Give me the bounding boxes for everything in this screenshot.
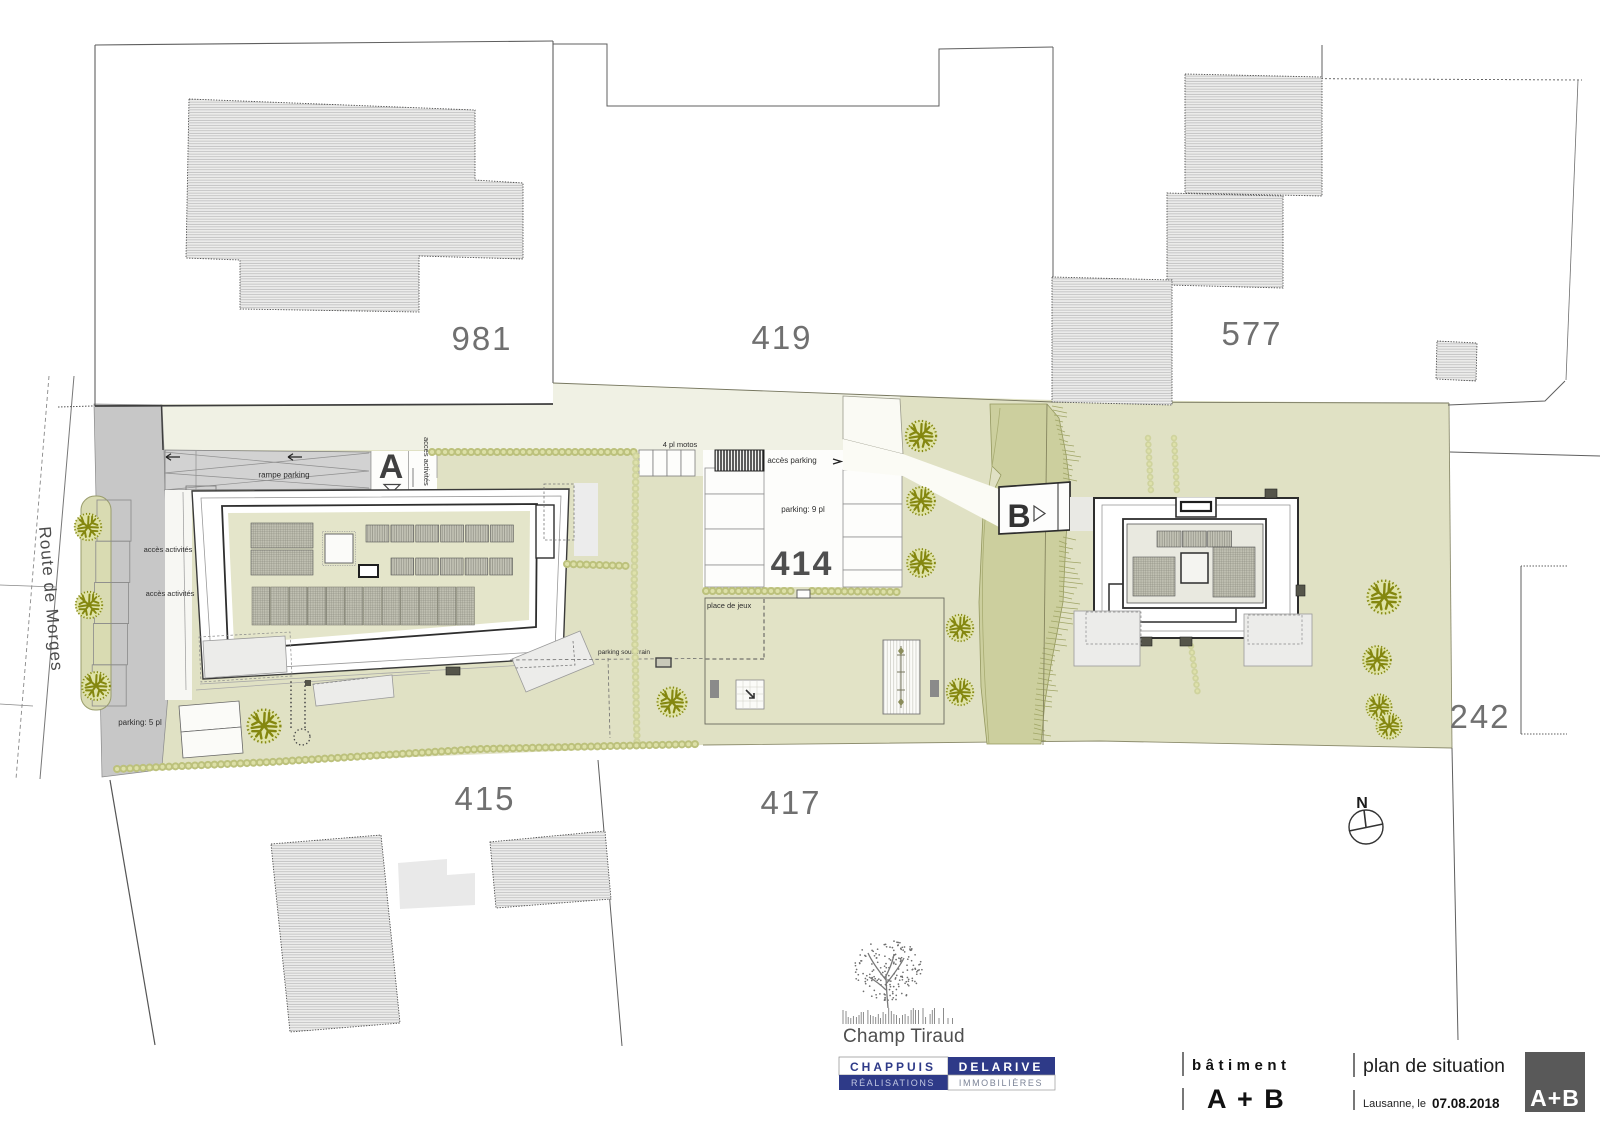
- svg-text:A+B: A+B: [1530, 1085, 1580, 1111]
- svg-text:577: 577: [1221, 315, 1282, 352]
- svg-text:DELARIVE: DELARIVE: [959, 1060, 1044, 1074]
- svg-text:parking: 5 pl: parking: 5 pl: [118, 718, 162, 727]
- svg-text:A: A: [379, 448, 404, 486]
- svg-text:4 pl motos: 4 pl motos: [663, 440, 698, 449]
- svg-text:CHAPPUIS: CHAPPUIS: [850, 1060, 936, 1074]
- svg-text:A + B: A + B: [1207, 1084, 1286, 1114]
- svg-text:bâtiment: bâtiment: [1192, 1057, 1291, 1074]
- svg-text:414: 414: [771, 545, 834, 583]
- svg-text:rampe parking: rampe parking: [258, 471, 309, 480]
- svg-text:accès activités: accès activités: [144, 545, 193, 554]
- svg-text:plan de situation: plan de situation: [1363, 1055, 1505, 1077]
- svg-text:415: 415: [454, 780, 515, 817]
- svg-text:Lausanne, le: Lausanne, le: [1363, 1098, 1426, 1110]
- svg-text:parking: 9 pl: parking: 9 pl: [781, 505, 825, 514]
- svg-text:parking souterrain: parking souterrain: [598, 649, 650, 656]
- svg-text:Champ Tiraud: Champ Tiraud: [843, 1026, 965, 1047]
- svg-text:RÉALISATIONS: RÉALISATIONS: [851, 1078, 935, 1088]
- svg-text:B: B: [1007, 498, 1030, 534]
- svg-text:981: 981: [451, 320, 512, 357]
- svg-text:N: N: [1356, 795, 1368, 812]
- svg-text:accès parking: accès parking: [767, 456, 816, 465]
- svg-text:419: 419: [751, 319, 812, 356]
- svg-text:07.08.2018: 07.08.2018: [1432, 1096, 1500, 1111]
- svg-text:417: 417: [760, 784, 821, 821]
- svg-text:accès activités: accès activités: [422, 437, 431, 486]
- svg-text:242: 242: [1449, 698, 1510, 735]
- svg-text:place de jeux: place de jeux: [707, 601, 751, 610]
- svg-text:IMMOBILIÈRES: IMMOBILIÈRES: [959, 1078, 1043, 1088]
- svg-text:accès activités: accès activités: [146, 589, 195, 598]
